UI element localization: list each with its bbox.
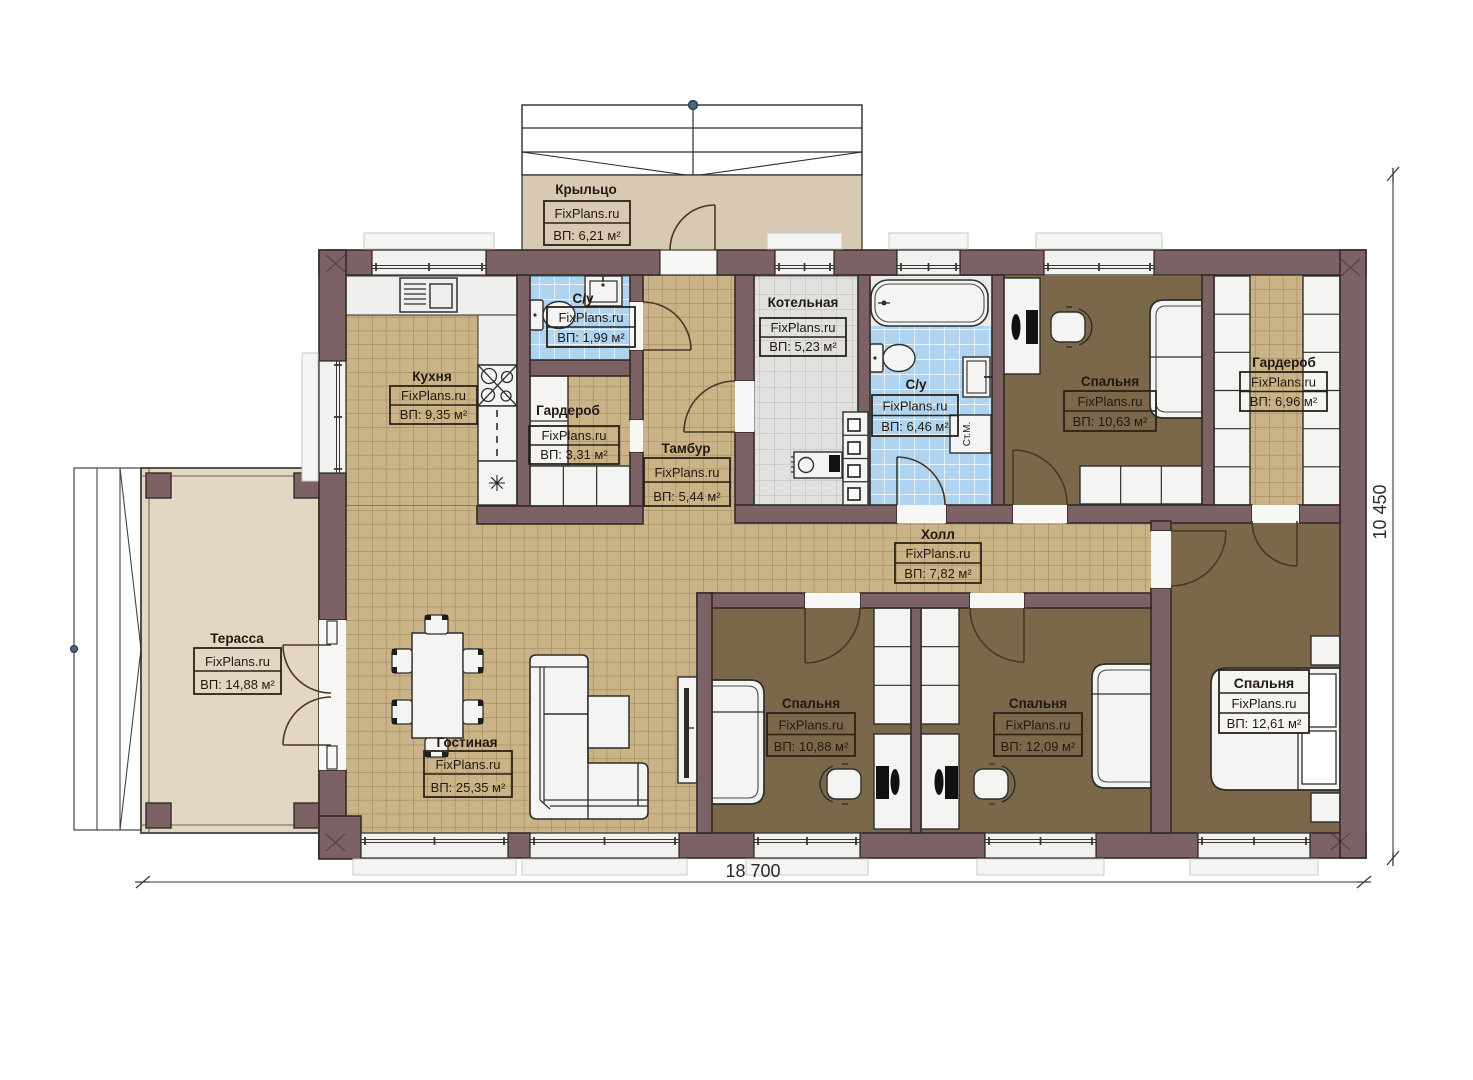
svg-text:ВП: 5,23 м²: ВП: 5,23 м² bbox=[769, 339, 837, 354]
svg-text:FixPlans.ru: FixPlans.ru bbox=[205, 654, 270, 669]
svg-text:ВП: 25,35 м²: ВП: 25,35 м² bbox=[431, 780, 506, 795]
svg-text:FixPlans.ru: FixPlans.ru bbox=[541, 428, 606, 443]
svg-text:ВП: 10,63 м²: ВП: 10,63 м² bbox=[1073, 414, 1148, 429]
svg-text:Гардероб: Гардероб bbox=[1252, 355, 1316, 370]
svg-text:Гардероб: Гардероб bbox=[536, 403, 600, 418]
svg-text:ВП: 12,09 м²: ВП: 12,09 м² bbox=[1001, 739, 1076, 754]
svg-text:FixPlans.ru: FixPlans.ru bbox=[401, 388, 466, 403]
svg-text:FixPlans.ru: FixPlans.ru bbox=[558, 310, 623, 325]
svg-text:10 450: 10 450 bbox=[1370, 484, 1390, 539]
svg-text:ВП: 10,88 м²: ВП: 10,88 м² bbox=[774, 739, 849, 754]
svg-text:FixPlans.ru: FixPlans.ru bbox=[554, 206, 619, 221]
svg-text:Спальня: Спальня bbox=[1009, 696, 1067, 711]
svg-text:FixPlans.ru: FixPlans.ru bbox=[1231, 696, 1296, 711]
svg-text:FixPlans.ru: FixPlans.ru bbox=[1005, 718, 1070, 733]
svg-text:Спальня: Спальня bbox=[782, 696, 840, 711]
svg-text:ВП: 9,35 м²: ВП: 9,35 м² bbox=[400, 407, 468, 422]
svg-text:FixPlans.ru: FixPlans.ru bbox=[905, 546, 970, 561]
svg-text:Спальня: Спальня bbox=[1081, 374, 1139, 389]
svg-text:FixPlans.ru: FixPlans.ru bbox=[1077, 394, 1142, 409]
svg-text:Ст.М.: Ст.М. bbox=[962, 422, 973, 447]
svg-text:ВП: 6,21 м²: ВП: 6,21 м² bbox=[553, 228, 621, 243]
svg-text:FixPlans.ru: FixPlans.ru bbox=[654, 465, 719, 480]
svg-text:18 700: 18 700 bbox=[725, 861, 780, 881]
svg-text:Кухня: Кухня bbox=[412, 369, 451, 384]
svg-text:Спальня: Спальня bbox=[1234, 675, 1294, 691]
svg-text:Крыльцо: Крыльцо bbox=[555, 182, 616, 197]
svg-text:Тамбур: Тамбур bbox=[662, 441, 711, 456]
svg-text:Холл: Холл bbox=[921, 527, 955, 542]
svg-text:FixPlans.ru: FixPlans.ru bbox=[435, 757, 500, 772]
svg-text:ВП: 6,96 м²: ВП: 6,96 м² bbox=[1250, 394, 1318, 409]
svg-text:С/у: С/у bbox=[905, 377, 927, 392]
svg-text:ВП: 5,44 м²: ВП: 5,44 м² bbox=[653, 489, 721, 504]
svg-text:Котельная: Котельная bbox=[768, 295, 839, 310]
svg-text:Терасса: Терасса bbox=[210, 631, 264, 646]
svg-text:С/у: С/у bbox=[572, 291, 594, 306]
svg-text:ВП: 12,61 м²: ВП: 12,61 м² bbox=[1227, 716, 1302, 731]
svg-text:ВП: 6,46 м²: ВП: 6,46 м² bbox=[881, 419, 949, 434]
svg-text:ВП: 3,31 м²: ВП: 3,31 м² bbox=[540, 447, 608, 462]
svg-text:ВП: 7,82 м²: ВП: 7,82 м² bbox=[904, 566, 972, 581]
svg-text:✳: ✳ bbox=[488, 471, 506, 496]
svg-text:FixPlans.ru: FixPlans.ru bbox=[1251, 375, 1316, 390]
svg-text:ВП: 1,99 м²: ВП: 1,99 м² bbox=[557, 330, 625, 345]
svg-text:ВП: 14,88 м²: ВП: 14,88 м² bbox=[200, 677, 275, 692]
svg-text:FixPlans.ru: FixPlans.ru bbox=[882, 399, 947, 414]
svg-text:FixPlans.ru: FixPlans.ru bbox=[770, 320, 835, 335]
svg-text:FixPlans.ru: FixPlans.ru bbox=[778, 718, 843, 733]
svg-text:Гостиная: Гостиная bbox=[436, 735, 497, 750]
